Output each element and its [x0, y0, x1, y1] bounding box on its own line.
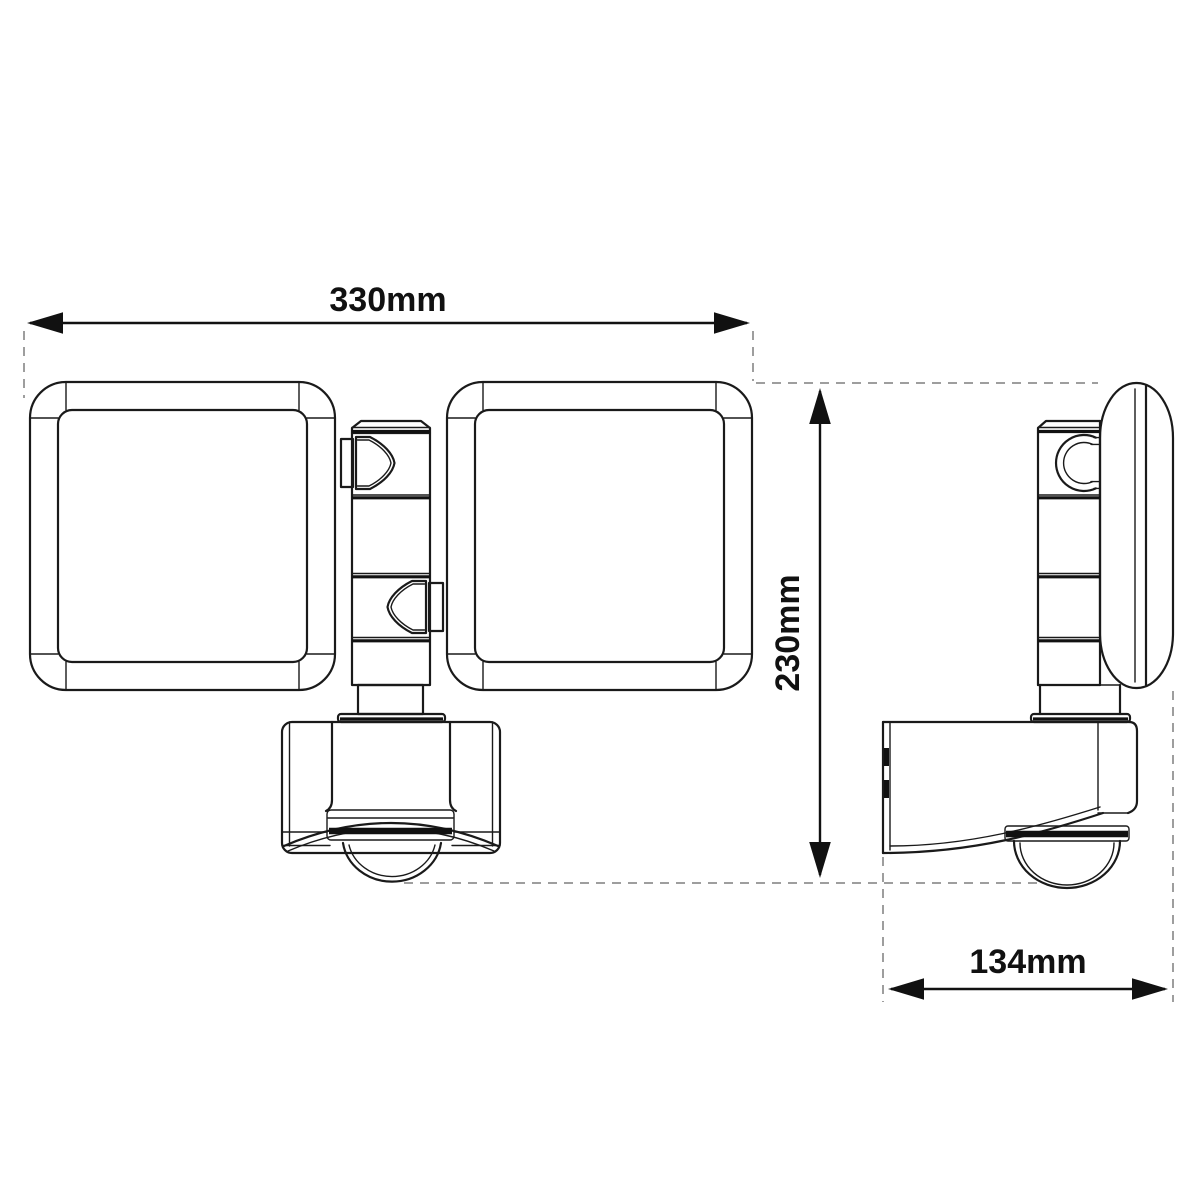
side-view	[883, 383, 1173, 888]
dimension-width: 330mm	[30, 281, 747, 323]
dimension-height: 230mm	[769, 391, 820, 875]
led-panel-side	[1100, 383, 1173, 688]
height-dimension-label: 230mm	[769, 574, 807, 691]
width-dimension-label: 330mm	[329, 281, 446, 319]
sensor-dome-front	[343, 843, 441, 882]
hinge-knob-upper	[341, 437, 395, 489]
extension-lines	[24, 331, 1173, 1002]
dimension-depth: 134mm	[891, 943, 1165, 989]
front-view	[30, 382, 752, 882]
sensor-dome-side	[1014, 841, 1120, 888]
led-panel-left	[30, 382, 335, 690]
hinge-knob-lower	[388, 581, 444, 633]
sensor-base-side	[883, 722, 1137, 888]
mounting-bracket-front	[338, 421, 445, 722]
depth-dimension-label: 134mm	[969, 943, 1086, 981]
led-panel-right	[447, 382, 752, 690]
sensor-base-front	[282, 722, 500, 882]
bracket-neck-front	[358, 685, 423, 714]
sensor-collar-front	[327, 810, 454, 840]
dimension-drawing: 330mm 230mm 134mm	[0, 0, 1200, 1200]
hinge-knob-side	[1056, 435, 1100, 491]
